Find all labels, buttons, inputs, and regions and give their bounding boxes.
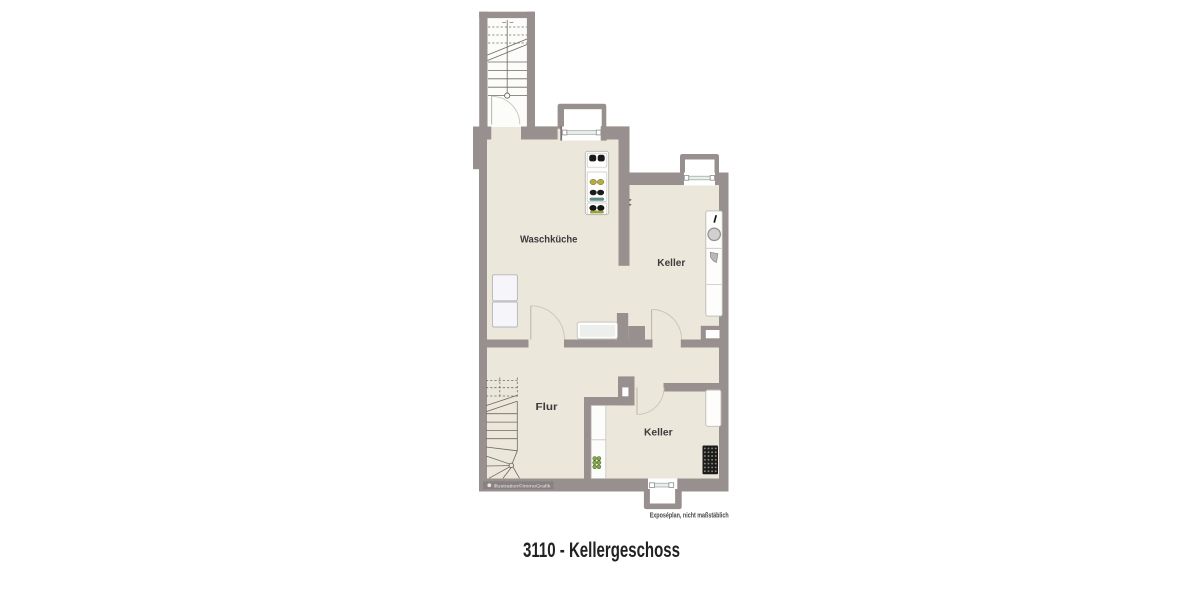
svg-text:Flur: Flur: [536, 402, 558, 413]
svg-text:Waschküche: Waschküche: [520, 235, 578, 246]
svg-text:Keller: Keller: [644, 427, 673, 438]
svg-text:3110 - Kellergeschoss: 3110 - Kellergeschoss: [523, 539, 680, 562]
svg-text:Keller: Keller: [657, 258, 685, 269]
svg-text:Illustration©ImmoGrafik: Illustration©ImmoGrafik: [494, 482, 552, 489]
svg-text:Exposéplan, nicht maßstäblich: Exposéplan, nicht maßstäblich: [650, 511, 729, 520]
